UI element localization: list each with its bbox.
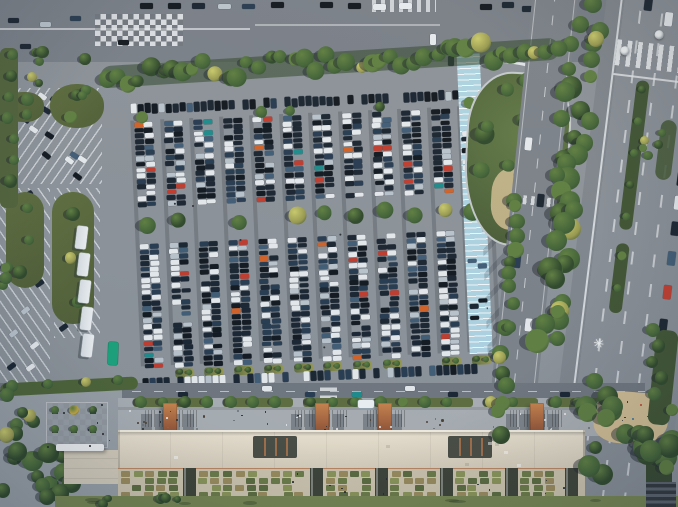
aerial-photo-scene: ✳ [0, 0, 678, 507]
photo-vignette [0, 0, 678, 507]
